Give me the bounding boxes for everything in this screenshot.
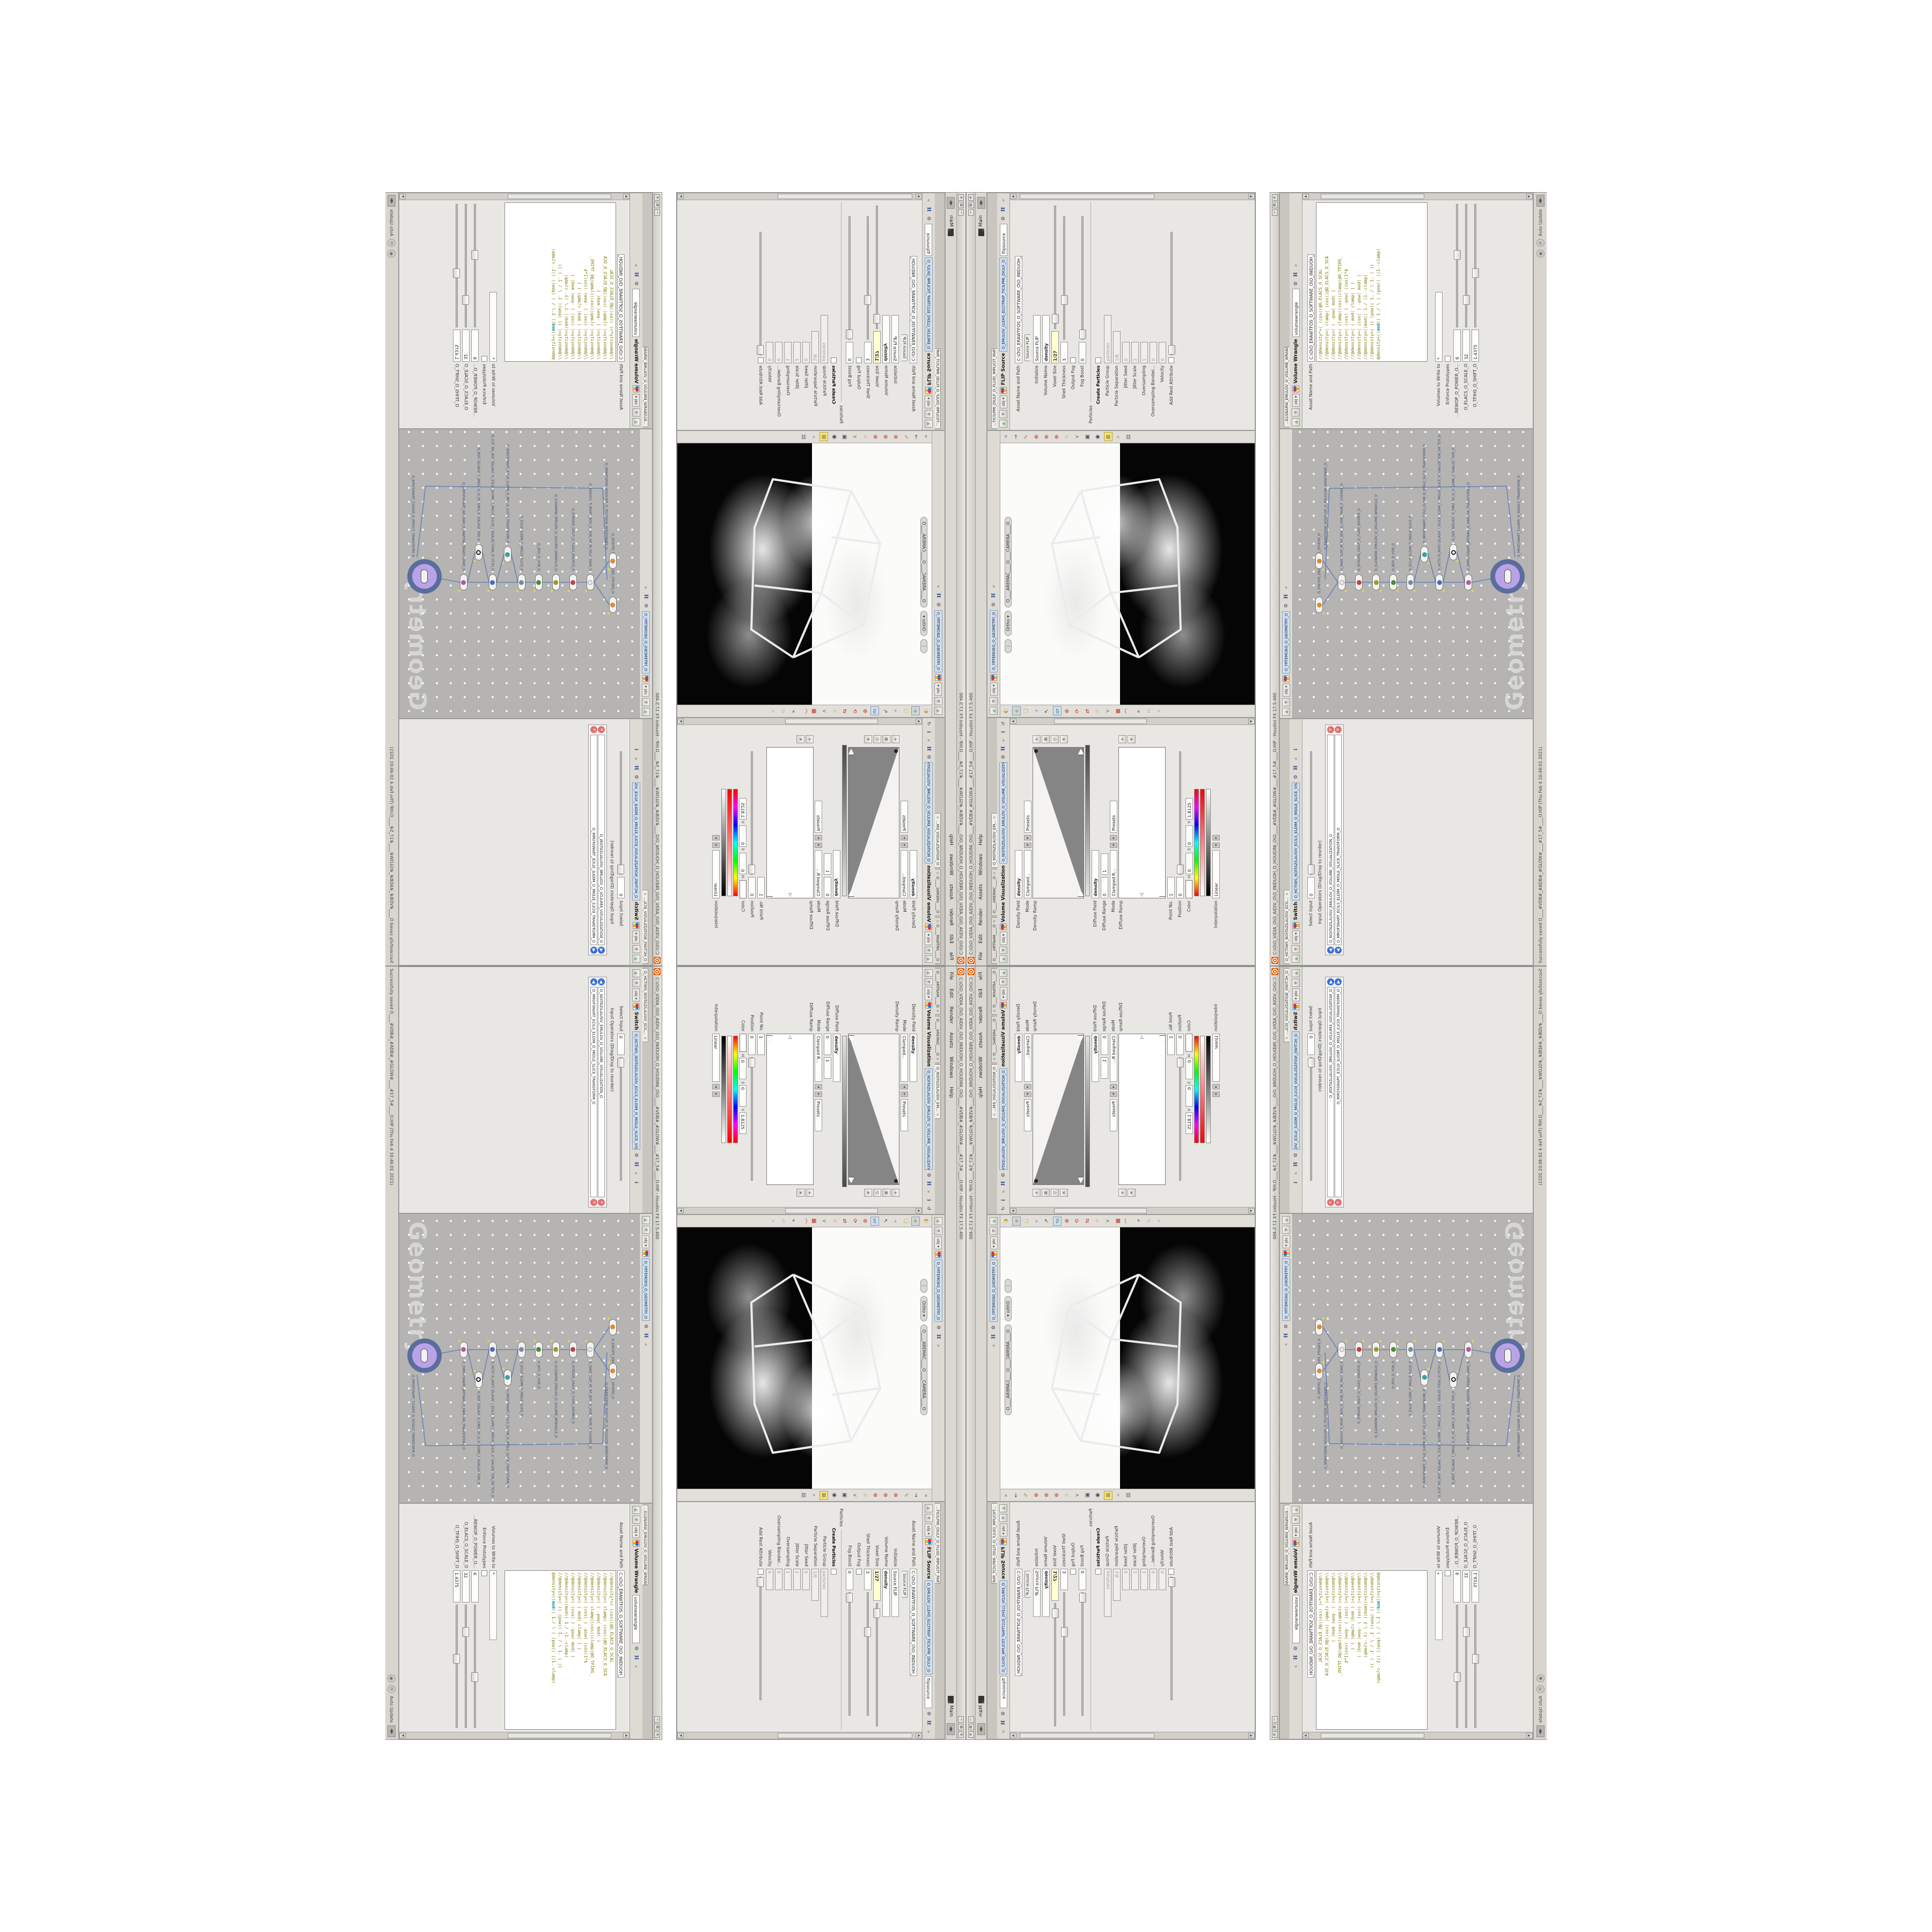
recook-icon[interactable]: ↺ (1000, 1205, 1007, 1212)
ramp-table-icon[interactable]: ⊞ (1042, 1189, 1050, 1197)
menu-windows[interactable]: Windows (948, 853, 954, 876)
power-input[interactable]: 6 (472, 330, 479, 362)
context-dropdown[interactable]: obj ▾ (633, 394, 640, 407)
menu-help[interactable]: Help (948, 1086, 954, 1099)
info-icon[interactable]: ℹ (633, 1179, 640, 1186)
axis-icon[interactable]: ⋎ (819, 707, 828, 716)
volvis-scrollbar[interactable]: ▲▼ (677, 1207, 922, 1214)
val-input[interactable]: 1.8125 (740, 1113, 747, 1134)
diffuse-field-input[interactable]: density (1092, 850, 1099, 898)
ramp-table-icon[interactable]: ⊞ (1042, 735, 1050, 743)
shift-slider[interactable] (456, 1605, 458, 1728)
context-dropdown[interactable]: obj ▾ (1000, 932, 1007, 945)
density-ramp-editor[interactable] (848, 747, 899, 898)
gear-icon[interactable]: ⚙ (925, 215, 933, 222)
ramp-close-icon[interactable]: ✕ (1128, 1189, 1136, 1197)
minimize-button[interactable]: ─ (655, 1716, 661, 1723)
camera-pill[interactable]: O____AREMAC____O____CAMERA____O (1005, 1324, 1012, 1415)
ramp-add-icon[interactable]: + (891, 735, 899, 743)
tab-volume-wrangle[interactable]: ...ELGNARW_EMULOV_O_VOLUME_WRANGLE_O× (1284, 1505, 1290, 1585)
search-icon[interactable]: ⌕ (925, 737, 933, 744)
hue-input[interactable]: 0 (1185, 1058, 1193, 1079)
voxel-size-slider[interactable] (1054, 206, 1056, 329)
snowflake-icon[interactable]: ❄ (860, 1491, 869, 1500)
context-dropdown[interactable]: obj ▾ (925, 396, 933, 408)
network-node[interactable] (460, 574, 467, 590)
node-path-field[interactable]: O_EMULOV_LLEHS_ELCITRAP_TICILPMI_DIULF_O (925, 258, 933, 352)
prev-icon[interactable]: ◀ (1212, 1084, 1220, 1089)
viewport-canvas[interactable]: ⋮ Ortho ▾ O____AREMAC____O____CAMERA____… (677, 443, 932, 705)
add-rest-checkbox[interactable] (758, 1569, 764, 1575)
gear-icon[interactable]: ⚙ (990, 601, 998, 609)
jitter-seed-input[interactable]: 0 (803, 1569, 810, 1590)
collapse-icon[interactable]: ◂ (891, 707, 899, 716)
tab-mantra[interactable]: O____ARTNAM____O× (935, 968, 941, 1015)
presets-dropdown[interactable]: Presets (901, 1099, 909, 1131)
volumes-to-write-input[interactable]: * (1435, 292, 1443, 362)
shade-mode-icon[interactable]: ◈ (911, 707, 920, 716)
nav-up-icon[interactable]: ▲ (999, 1504, 1007, 1512)
nav-down-icon[interactable]: ▼ (632, 945, 640, 953)
context-dropdown[interactable]: obj ▾ (935, 1236, 942, 1249)
menu-help[interactable]: Help (948, 833, 954, 846)
create-particles-checkbox[interactable] (831, 357, 837, 363)
zoom-icon[interactable]: ⌕ (809, 433, 818, 442)
nav-up-icon[interactable]: ▲ (990, 707, 998, 715)
search-icon[interactable]: ⌕ (1292, 261, 1300, 269)
ortho-pill[interactable]: Ortho ▾ (1005, 611, 1012, 636)
asset-path-field[interactable]: C:\O\O_ERAWTFOS_O_SOFTWARE_O\O_INIDUOH_O… (1307, 254, 1315, 362)
node-name-field[interactable]: volumewrangle (1292, 289, 1300, 337)
tab-fluid-implicit[interactable]: ...TICILPMI_DIULF_O_FLUID_IMPLICIT_PARTI… (935, 348, 941, 429)
hue-input[interactable]: 0 (740, 1058, 747, 1079)
close-button[interactable]: ✕ (1272, 194, 1278, 201)
tab-visualization[interactable]: O_NOITAZILAUSIV_EM...× (935, 813, 941, 868)
edit-icon[interactable]: ✎ (1022, 433, 1031, 442)
network-node[interactable] (1338, 574, 1345, 590)
recook-icon[interactable]: ↺ (925, 1205, 933, 1212)
ramp-delete-icon[interactable]: ▽ (1051, 1189, 1059, 1197)
window2-titlebar[interactable]: C:\O\O_VIDIA_O\O_AIDIV_O\O_INIDUOH_O_HOU… (653, 193, 662, 965)
input-operator-field[interactable]: O_MROFSNART_ECILS_ELDIM_O_MIDLE_SLICE_TR… (1335, 987, 1342, 1197)
tab-close-icon[interactable]: × (1285, 1036, 1289, 1040)
gear-icon[interactable]: ⚙ (1283, 602, 1290, 610)
eye-icon[interactable]: ◉ (830, 433, 838, 442)
search-icon[interactable]: ⌕ (633, 1663, 640, 1671)
search-icon[interactable]: ⌕ (990, 583, 998, 590)
menu-assets[interactable]: Assets (948, 883, 954, 901)
search-icon[interactable]: ⌕ (633, 261, 640, 269)
flip-scrollbar[interactable]: ▲▼ (677, 1732, 922, 1739)
tab-mantra[interactable]: O____ARTNAM____O× (935, 917, 941, 964)
point-no-input[interactable]: 1 (758, 877, 765, 898)
nav-down-icon[interactable]: ▼ (1292, 979, 1300, 987)
tab-close-icon[interactable]: × (935, 1113, 940, 1116)
gear-icon[interactable]: ⚙ (1000, 1172, 1007, 1179)
input-operator-field[interactable]: O_MROFSNART_ECILS_ELDIM_O_MIDLE_SLICE_TR… (590, 987, 597, 1197)
context-dropdown[interactable]: obj ▾ (1292, 931, 1300, 943)
prev-icon[interactable]: ◀ (713, 1084, 720, 1089)
desktop-main-label[interactable]: Main (948, 1706, 954, 1717)
enforce-prototypes-checkbox[interactable] (481, 1570, 487, 1576)
diffuse-mode-dropdown[interactable]: Clamped R... (1110, 850, 1117, 898)
selected-network-node[interactable] (1490, 1338, 1525, 1373)
more-icon[interactable]: ▸ (789, 707, 797, 716)
nav-down-icon[interactable]: ▼ (999, 978, 1007, 986)
camera-pill[interactable]: O____AREMAC____O____CAMERA____O (920, 517, 927, 608)
snowflake-icon[interactable]: ❄ (1094, 707, 1102, 716)
zoom-icon[interactable]: ⌕ (1155, 1217, 1163, 1226)
network-node[interactable] (475, 1372, 482, 1388)
viewport-context-pill[interactable]: ⋮ (1005, 1279, 1012, 1293)
ramp-add-icon[interactable]: + (891, 1189, 899, 1197)
select-input-slider[interactable] (1310, 1057, 1312, 1181)
velocity-input[interactable]: 0 (1159, 1569, 1166, 1590)
next-icon[interactable]: ▶ (1024, 1092, 1031, 1097)
network-node[interactable] (489, 1342, 496, 1358)
diffuse-mode-dropdown[interactable]: Clamped R... (815, 1034, 823, 1082)
nav-up-icon[interactable]: ▲ (632, 418, 640, 426)
context-dropdown[interactable]: obj ▾ (1292, 989, 1300, 1001)
gear-icon[interactable]: ⚙ (925, 1172, 933, 1179)
viewport-canvas[interactable]: ⋮ Ortho ▾ O____AREMAC____O____CAMERA____… (677, 1227, 932, 1489)
gimbal-icon[interactable]: ⊕ (1033, 1491, 1041, 1500)
search-icon[interactable]: ⌕ (1283, 1341, 1290, 1348)
density-field-input[interactable]: density (910, 850, 918, 898)
nav-down-icon[interactable]: ▼ (925, 1514, 933, 1522)
particle-group-input[interactable]: particles (821, 1569, 829, 1617)
gear-icon[interactable]: ⚙ (1292, 773, 1300, 781)
network-node[interactable] (1355, 574, 1363, 590)
input-operator-row[interactable]: ◀ O_MROFSNART_ECILS_ELDIM_O_MIDLE_SLICE_… (590, 726, 597, 954)
particle-group-input[interactable]: particles (821, 315, 829, 363)
tab-close-icon[interactable]: × (935, 816, 940, 819)
next-icon[interactable]: ▶ (815, 835, 823, 840)
view-tool-icon[interactable]: GT (870, 1217, 879, 1226)
menubar-overflow[interactable]: ◀▶ (947, 1723, 955, 1735)
select-input-slider[interactable] (620, 1057, 623, 1181)
minimize-button[interactable]: ─ (968, 1716, 974, 1723)
color-swatch[interactable] (1185, 880, 1192, 898)
vex-snippet-editor[interactable]: //@density*=( (cos((@O_ELACS_O_SCAL //@d… (1316, 1570, 1428, 1730)
oversampling-bandwidth-input[interactable]: 0 (775, 342, 783, 363)
nav-down-icon[interactable]: ▼ (990, 697, 998, 705)
voxel-size-input[interactable]: 1/27 (1051, 331, 1059, 363)
tab-volume-wrangle[interactable]: ...ELGNARW_EMULOV_O_VOLUME_WRANGLE_O× (642, 347, 648, 427)
volumes-to-write-input[interactable]: * (490, 292, 497, 362)
input-operator-row[interactable]: ◀ O_NOITAZILAUSIV_EMULOV_O_VOLUME_VISUAL… (598, 726, 605, 954)
volvis-scrollbar[interactable]: ▲▼ (1010, 718, 1255, 725)
vex-snippet-editor[interactable]: //@density*=( (cos((@O_ELACS_O_SCAL //@d… (504, 1570, 616, 1730)
eye-icon[interactable]: ◉ (1094, 433, 1102, 442)
menu-render[interactable]: Render (948, 907, 954, 926)
ortho-pill[interactable]: Ortho ▾ (920, 611, 927, 636)
volume-name-input[interactable]: density (1042, 1569, 1050, 1617)
gear-icon[interactable]: ⚙ (1000, 1710, 1007, 1717)
network-node[interactable] (518, 1342, 525, 1358)
sat-input[interactable]: 0 (1185, 1085, 1193, 1107)
nav-up-icon[interactable]: ▲ (1282, 1216, 1290, 1224)
network-node[interactable] (587, 1342, 594, 1358)
nav-down-icon[interactable]: ▼ (1292, 945, 1300, 953)
search-icon[interactable]: ⌕ (1000, 1728, 1007, 1736)
quadview-icon[interactable]: ⊞ (819, 1491, 828, 1500)
position-input[interactable]: 0 (749, 877, 756, 898)
presets-dropdown[interactable]: Presets (1024, 1099, 1031, 1131)
asset-path-field[interactable]: C:\O\O_ERAWTFOS_O_SOFTWARE_O\O_INIDUOH_O… (1307, 1570, 1315, 1678)
select-input-field[interactable]: 0 (1307, 1034, 1315, 1055)
nav-up-icon[interactable]: ▲ (1292, 418, 1300, 426)
diffuse-presets-dropdown[interactable]: Presets (815, 801, 823, 833)
network-node[interactable] (587, 574, 594, 590)
info-icon[interactable]: ℹ (633, 746, 640, 753)
tab-camera[interactable]: O____AREMAC____O× (935, 1016, 941, 1063)
tab-switch[interactable]: O_HCTIWS_NOITAZILAUSIV_ECIL...× (642, 968, 648, 1042)
nav-up-icon[interactable]: ▲ (925, 420, 933, 428)
oversampling-bandwidth-input[interactable]: 0 (775, 1569, 783, 1590)
nav-up-icon[interactable]: ▲ (999, 955, 1007, 963)
nav-down-icon[interactable]: ▼ (632, 1516, 640, 1524)
close-button[interactable]: ✕ (968, 194, 974, 201)
view-tool-icon[interactable]: GT (870, 707, 879, 716)
auto-update-label[interactable]: Auto Update (390, 209, 394, 236)
saturation-slider[interactable] (1200, 789, 1205, 896)
maximize-button[interactable]: ⧉ (655, 1724, 661, 1730)
select-tool-icon[interactable]: ↖ (1043, 1217, 1051, 1226)
jump-to-node-icon[interactable]: ◀ (1335, 978, 1342, 985)
diffuse-field-input[interactable]: density (833, 850, 841, 898)
subtab-source-flip[interactable]: Source FLIP (902, 334, 908, 361)
diffuse-range-max[interactable]: 1 (1101, 1057, 1108, 1079)
menu-help[interactable]: Help (978, 833, 984, 846)
jitter-seed-input[interactable]: 0 (803, 342, 810, 363)
context-dropdown[interactable]: obj ▾ (1000, 1524, 1007, 1536)
jump-to-node-icon[interactable]: ◀ (590, 978, 597, 985)
input-operator-row[interactable]: ◀ O_MROFSNART_ECILS_ELDIM_O_MIDLE_SLICE_… (1335, 726, 1342, 954)
window2-titlebar[interactable]: C:\O\O_VIDIA_O\O_AIDIV_O\O_INIDUOH_O_HOU… (1270, 193, 1279, 965)
remove-input-icon[interactable]: × (598, 1199, 605, 1206)
layout-icon[interactable]: ▤ (1124, 1491, 1133, 1500)
nav-down-icon[interactable]: ▼ (925, 410, 933, 418)
network-node[interactable] (1436, 1342, 1443, 1358)
ramp-close-icon[interactable]: ✕ (796, 735, 804, 743)
create-particles-checkbox[interactable] (831, 1569, 837, 1575)
nav-up-icon[interactable]: ▲ (934, 707, 942, 715)
viewport-context-pill[interactable]: ⋮ (920, 1279, 927, 1293)
prev-icon[interactable]: ◀ (1024, 1084, 1031, 1089)
wrangle-scrollbar[interactable]: ▲▼ (1302, 193, 1533, 200)
eye-icon[interactable]: ◉ (1094, 1491, 1102, 1500)
menubar-overflow[interactable]: ◀▶ (977, 197, 985, 209)
ramp-add-icon[interactable]: + (1033, 1189, 1041, 1197)
network-node[interactable] (609, 553, 617, 569)
axis-icon[interactable]: ⋎ (1104, 1217, 1113, 1226)
scale-slider[interactable] (1465, 204, 1467, 327)
voxel-size-input[interactable]: 1/27 (1051, 1569, 1059, 1601)
particle-separation-input[interactable]: 1/6 (1113, 1569, 1121, 1601)
value-slider[interactable] (721, 789, 726, 896)
tab-volume-wrangle[interactable]: ...ELGNARW_EMULOV_O_VOLUME_WRANGLE_O× (1284, 347, 1290, 427)
initialize-dropdown[interactable]: Source FLIP (892, 1569, 899, 1617)
gear-icon[interactable]: ⚙ (633, 280, 640, 287)
velocity-input[interactable]: 0 (1159, 342, 1166, 363)
ortho-pill[interactable]: Ortho ▾ (920, 1296, 927, 1321)
tab-visualization[interactable]: O_NOITAZILAUSIV_EM...× (991, 813, 997, 868)
scale-tool-icon[interactable]: ⇄ (1084, 707, 1092, 716)
particle-separation-input[interactable]: 1/6 (1113, 331, 1121, 363)
node-path-field[interactable]: O_NOITAZILAUSIV_EMULOV_O_VOLUME_VISUALIZ… (999, 762, 1007, 864)
nav-down-icon[interactable]: ▼ (642, 698, 650, 706)
network-node[interactable] (535, 574, 543, 590)
scale-input[interactable]: 32 (1462, 330, 1470, 362)
close-button[interactable]: ✕ (958, 1731, 964, 1738)
shade-mode-icon[interactable]: ◈ (911, 1217, 920, 1226)
mode-dropdown[interactable]: Clamped... (901, 1034, 909, 1082)
zoom-icon[interactable]: ⌕ (769, 1217, 777, 1226)
context-dropdown[interactable]: obj ▾ (642, 1235, 650, 1248)
tab-close-icon[interactable]: × (992, 816, 997, 819)
ramp-marker-icon[interactable]: ◁ (1139, 893, 1145, 897)
layout-icon[interactable]: ▤ (1124, 433, 1133, 442)
gear-icon[interactable]: ⚙ (1292, 280, 1300, 287)
network-path-field[interactable]: O_YRTEMOEG_O_GEOMETRY_O (642, 1258, 650, 1321)
jitter-scale-input[interactable]: 2 (794, 342, 801, 363)
minimize-button[interactable]: ─ (1272, 209, 1278, 216)
viewport-path-field[interactable]: O_YRTEMOEG_O_GEOMETRY_O (934, 610, 942, 672)
zoom-icon[interactable]: ⌕ (809, 1491, 818, 1500)
view-tool-icon[interactable]: GT (1053, 1217, 1062, 1226)
viewport-context-pill[interactable]: ⋮ (920, 639, 927, 653)
rotate-tool-icon[interactable]: ⟳ (1073, 707, 1082, 716)
window1-titlebar[interactable]: C:\O\O_VIDIA_O\O_AIDIV_O\O_INIDUOH_O_HOU… (956, 193, 965, 965)
material-icon[interactable]: ❏ (1022, 1217, 1031, 1226)
gimbal-icon[interactable]: ⊕ (870, 1491, 879, 1500)
menu-file[interactable]: File (948, 971, 954, 981)
saturation-slider[interactable] (727, 789, 732, 896)
update-mode-icon[interactable]: ⟳ (388, 239, 396, 247)
tab-camera[interactable]: O____AREMAC____O× (991, 869, 997, 916)
camera-pill[interactable]: O____AREMAC____O____CAMERA____O (1005, 517, 1012, 608)
menu-render[interactable]: Render (948, 1006, 954, 1025)
diffuse-range-max[interactable]: 1 (1101, 853, 1108, 875)
arrow-icon[interactable]: → (1012, 433, 1021, 442)
add-rest-checkbox[interactable] (1168, 1569, 1174, 1575)
network-node[interactable] (609, 597, 617, 613)
viewport-path-field[interactable]: O_YRTEMOEG_O_GEOMETRY_O (990, 610, 998, 672)
shift-input[interactable]: 1.4375 (453, 1570, 461, 1602)
gear-icon[interactable]: ⚙ (633, 1151, 640, 1159)
fog-boost-slider[interactable] (849, 1592, 851, 1716)
menubar-overflow[interactable]: ◀▶ (977, 1723, 985, 1735)
nav-up-icon[interactable]: ▲ (925, 1504, 933, 1512)
network-node[interactable] (1372, 1342, 1380, 1358)
collapse-icon[interactable]: ◂ (1002, 1491, 1011, 1500)
shift-slider[interactable] (1474, 204, 1476, 327)
nav-down-icon[interactable]: ▼ (934, 1227, 942, 1235)
window2-titlebar[interactable]: C:\O\O_VIDIA_O\O_AIDIV_O\O_INIDUOH_O_HOU… (1270, 967, 1279, 1739)
voxel-size-input[interactable]: 1/27 (874, 1569, 881, 1601)
tab-close-icon[interactable]: × (992, 920, 997, 923)
presets-dropdown[interactable]: Presets (1024, 801, 1031, 833)
gimbal-icon[interactable]: ⊕ (1043, 1491, 1051, 1500)
position-input[interactable]: 0 (749, 1034, 756, 1055)
axis-icon[interactable]: ⋎ (850, 433, 859, 442)
tab-close-icon[interactable]: × (935, 1057, 940, 1060)
power-input[interactable]: 6 (472, 1570, 479, 1602)
shell-thickness-input[interactable]: 3 (865, 1569, 872, 1590)
network-node[interactable] (1355, 1342, 1363, 1358)
network-node[interactable] (1450, 1372, 1457, 1388)
context-dropdown[interactable]: obj ▾ (1283, 684, 1290, 697)
menu-windows[interactable]: Windows (978, 1056, 984, 1079)
eye-icon[interactable]: ◉ (830, 1491, 838, 1500)
fog-boost-slider[interactable] (849, 216, 851, 340)
network-node[interactable] (1315, 553, 1323, 569)
nav-down-icon[interactable]: ▼ (925, 978, 933, 986)
nav-up-icon[interactable]: ▲ (1292, 1506, 1300, 1514)
jitter-scale-input[interactable]: 2 (1131, 342, 1139, 363)
shift-input[interactable]: 1.4375 (1472, 1570, 1479, 1602)
axis-icon[interactable]: ⋎ (1073, 433, 1082, 442)
select-input-field[interactable]: 0 (618, 1034, 625, 1055)
desktop-main-label[interactable]: Main (978, 215, 984, 227)
nav-down-icon[interactable]: ▼ (999, 410, 1007, 418)
network-node[interactable] (552, 1342, 560, 1358)
shift-input[interactable]: 1.4375 (1472, 330, 1479, 362)
ramp-table-icon[interactable]: ⊞ (882, 1189, 890, 1197)
tab-switch[interactable]: O_HCTIWS_NOITAZILAUSIV_ECIL...× (1284, 968, 1290, 1042)
info-icon[interactable]: ℹ (1292, 746, 1300, 753)
network-node[interactable] (1450, 544, 1457, 560)
maximize-button[interactable]: ⧉ (968, 1724, 974, 1730)
nav-down-icon[interactable]: ▼ (632, 408, 640, 416)
auto-update-label[interactable]: Auto Update (390, 1696, 394, 1723)
nav-up-icon[interactable]: ▲ (642, 708, 650, 716)
maximize-button[interactable]: ⧉ (958, 1724, 964, 1730)
gear-icon[interactable]: ⚙ (1292, 1151, 1300, 1159)
move-tool-icon[interactable]: ⊕ (1063, 1217, 1072, 1226)
network-node[interactable] (552, 574, 560, 590)
sat-input[interactable]: 0 (1185, 825, 1193, 847)
velocity-input[interactable]: 0 (766, 342, 774, 363)
selected-network-node[interactable] (407, 559, 442, 594)
snowflake-icon[interactable]: ❄ (1063, 1491, 1072, 1500)
context-dropdown[interactable]: obj ▾ (1292, 394, 1300, 407)
material-icon[interactable]: ❏ (901, 707, 910, 716)
gear-icon[interactable]: ⚙ (1292, 1645, 1300, 1652)
ramp-delete-icon[interactable]: ▽ (1051, 735, 1059, 743)
ramp-table-icon[interactable]: ⊞ (882, 735, 890, 743)
maximize-button[interactable]: ⧉ (968, 202, 974, 208)
network-node[interactable] (475, 544, 482, 560)
shift-slider[interactable] (1474, 1605, 1476, 1728)
density-ramp-editor[interactable] (1033, 747, 1084, 898)
sat-input[interactable]: 0 (740, 825, 747, 847)
select-input-slider[interactable] (620, 751, 623, 875)
ramp-close-icon[interactable]: ✕ (796, 1189, 804, 1197)
menu-help[interactable]: Help (978, 1086, 984, 1099)
diffuse-ramp-editor[interactable]: ◁ (1118, 1034, 1166, 1185)
tab-close-icon[interactable]: × (935, 1009, 940, 1013)
position-input[interactable]: 0 (1176, 877, 1184, 898)
edit-icon[interactable]: ✎ (901, 433, 910, 442)
select-input-slider[interactable] (1310, 751, 1312, 875)
jump-to-node-icon[interactable]: ◀ (598, 947, 605, 954)
network-path-field[interactable]: O_YRTEMOEG_O_GEOMETRY_O (1282, 1258, 1290, 1321)
notes-icon[interactable]: ▱ (779, 707, 787, 716)
viewport-context-pill[interactable]: ⋮ (1005, 639, 1012, 653)
search-icon[interactable]: ⌕ (925, 1188, 933, 1195)
